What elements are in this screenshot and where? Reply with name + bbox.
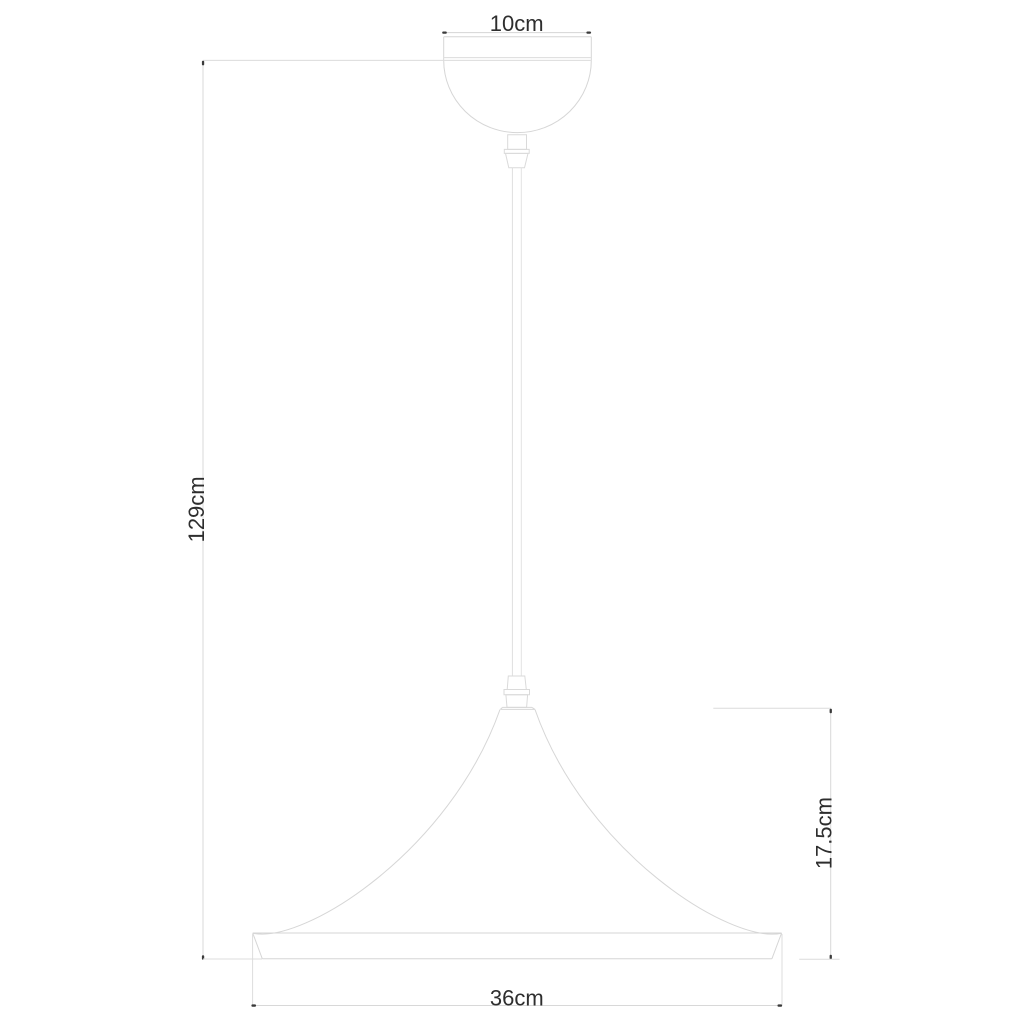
svg-text:129cm: 129cm	[184, 476, 209, 542]
svg-text:10cm: 10cm	[490, 11, 544, 36]
svg-text:17.5cm: 17.5cm	[812, 797, 837, 869]
svg-text:36cm: 36cm	[490, 986, 544, 1011]
